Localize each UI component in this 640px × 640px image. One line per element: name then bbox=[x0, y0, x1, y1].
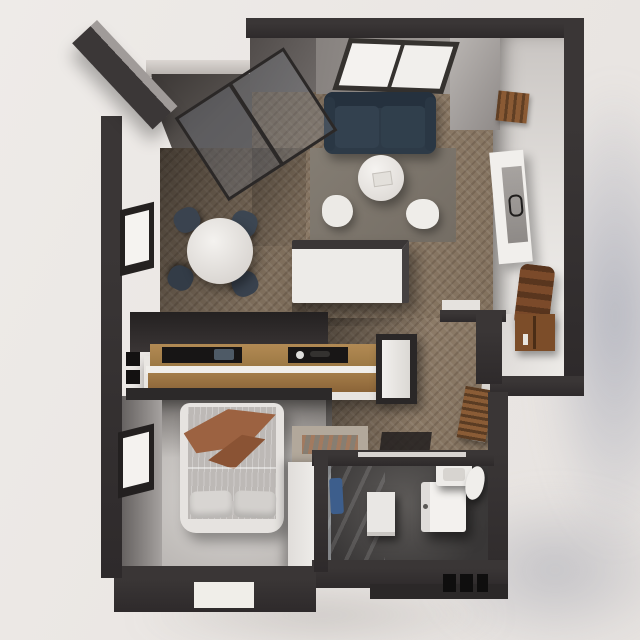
tray-handle bbox=[508, 194, 524, 217]
window-pane bbox=[339, 43, 401, 87]
vent bbox=[477, 574, 488, 592]
sofa-cushion bbox=[335, 106, 379, 148]
towel bbox=[329, 478, 344, 515]
skylight-window bbox=[332, 38, 460, 94]
pouf-left bbox=[322, 195, 353, 227]
exterior-step bbox=[194, 582, 254, 608]
pouf-right bbox=[406, 199, 439, 229]
wall-coat-rack bbox=[496, 90, 530, 123]
wall-switch bbox=[126, 352, 140, 366]
fridge bbox=[376, 334, 417, 404]
vent bbox=[443, 574, 456, 592]
pillow-right bbox=[234, 490, 277, 518]
cooktop-recess bbox=[162, 347, 242, 363]
sink-basin bbox=[443, 468, 465, 481]
coffee-table bbox=[358, 155, 404, 201]
dining-table bbox=[187, 218, 253, 284]
window-pane bbox=[123, 432, 149, 488]
laundry-cabinet bbox=[367, 492, 395, 536]
outer-wall-right bbox=[564, 18, 584, 380]
wall-switch bbox=[126, 370, 140, 384]
entry-stub-wall bbox=[476, 310, 502, 384]
washing-machine bbox=[421, 482, 466, 532]
bedroom-bathroom-divider bbox=[314, 450, 328, 572]
outer-wall-top bbox=[246, 18, 584, 38]
faucet bbox=[310, 351, 330, 357]
table-card bbox=[372, 171, 393, 188]
kettle bbox=[296, 351, 304, 359]
entry-console-cabinet bbox=[515, 314, 555, 351]
sink-recess bbox=[288, 347, 348, 363]
washer-knob bbox=[423, 504, 428, 509]
sofa-cushion bbox=[381, 106, 425, 148]
dining-window bbox=[120, 202, 154, 276]
vent bbox=[460, 574, 473, 592]
sheet-fold-line bbox=[188, 467, 276, 469]
window-pane bbox=[125, 210, 149, 266]
fridge-door bbox=[382, 340, 410, 398]
bed bbox=[180, 403, 284, 533]
sofa-armrest bbox=[425, 97, 436, 151]
cabinet-item bbox=[523, 334, 528, 345]
cabinet-divider bbox=[533, 316, 536, 349]
skylight-right-wall bbox=[450, 36, 500, 130]
kitchen-island bbox=[292, 240, 409, 303]
bedroom-window bbox=[118, 424, 154, 499]
outer-wall-left bbox=[101, 116, 122, 578]
sofa bbox=[324, 92, 436, 154]
floor-plan-render bbox=[0, 0, 640, 640]
small-appliance bbox=[214, 349, 234, 360]
bedroom-top-wall bbox=[126, 388, 332, 400]
bathroom-wall-cap bbox=[358, 452, 466, 457]
pillow-left bbox=[190, 490, 233, 518]
window-pane bbox=[391, 45, 453, 89]
